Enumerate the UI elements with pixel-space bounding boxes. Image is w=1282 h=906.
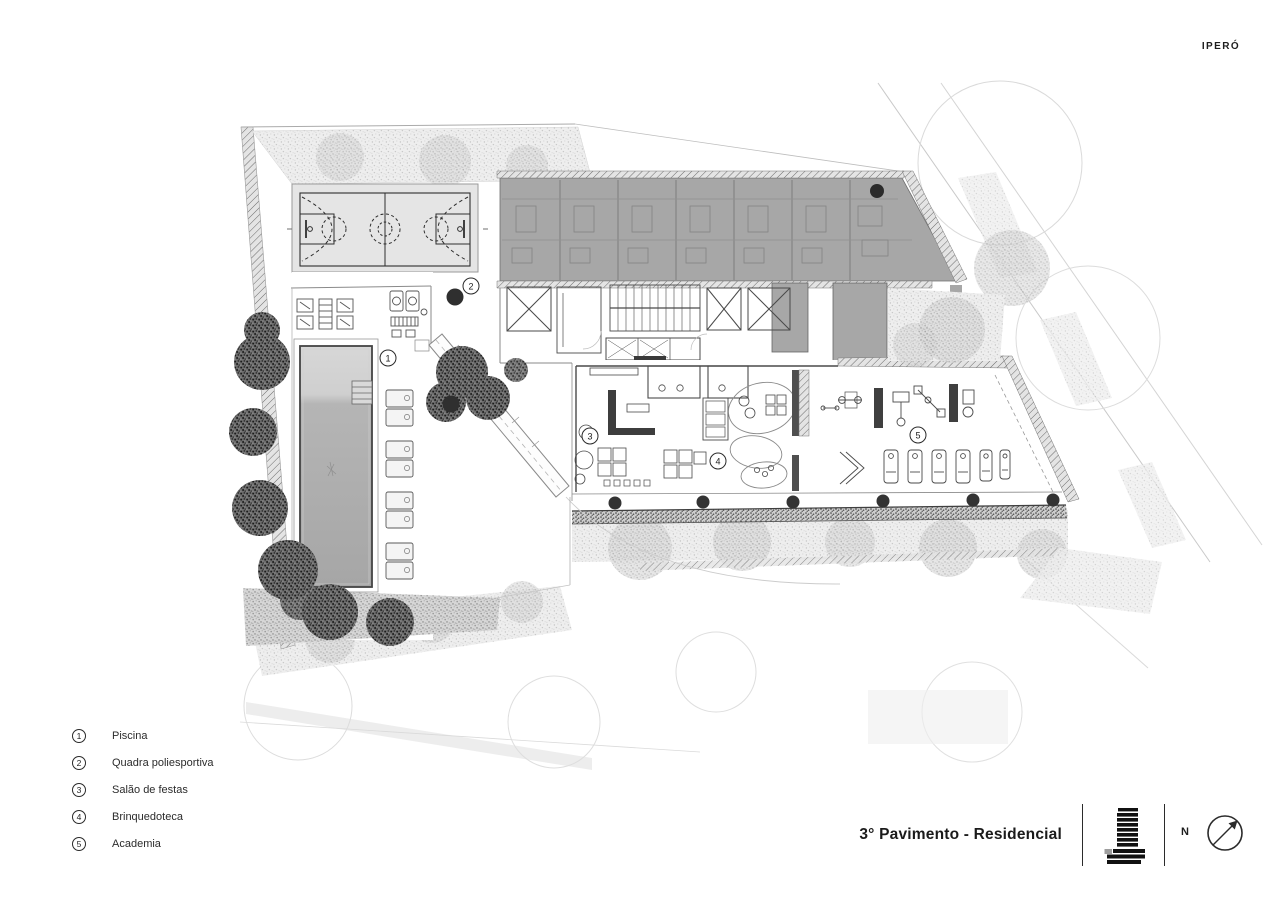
plan-marker-brinquedoteca: 4 bbox=[710, 453, 727, 470]
circulation-core bbox=[500, 285, 790, 363]
basketball-court bbox=[287, 184, 488, 272]
legend-item-salao: 3 Salão de festas bbox=[72, 783, 214, 797]
titleblock-divider-right bbox=[1164, 804, 1165, 866]
legend-item-brinquedoteca: 4 Brinquedoteca bbox=[72, 810, 214, 824]
plan-marker-piscina: 1 bbox=[380, 350, 397, 367]
plan-marker-salao: 3 bbox=[582, 428, 599, 445]
plan-marker-academia: 5 bbox=[910, 427, 927, 444]
legend-item-piscina: 1 Piscina bbox=[72, 729, 214, 743]
legend-number-1: 1 bbox=[72, 729, 86, 743]
garden-east bbox=[888, 288, 1005, 367]
building-elevation-icon bbox=[1104, 806, 1148, 864]
legend-number-2: 2 bbox=[72, 756, 86, 770]
legend-number-5: 5 bbox=[72, 837, 86, 851]
legend-number-4: 4 bbox=[72, 810, 86, 824]
legend-label-5: Academia bbox=[112, 838, 161, 850]
legend: 1 Piscina 2 Quadra poliesportiva 3 Salão… bbox=[72, 729, 214, 864]
legend-label-4: Brinquedoteca bbox=[112, 811, 183, 823]
legend-label-1: Piscina bbox=[112, 730, 147, 742]
legend-number-3: 3 bbox=[72, 783, 86, 797]
sheet-title: 3° Pavimento - Residencial bbox=[840, 826, 1062, 844]
legend-item-quadra: 2 Quadra poliesportiva bbox=[72, 756, 214, 770]
legend-item-academia: 5 Academia bbox=[72, 837, 214, 851]
titleblock-divider-left bbox=[1082, 804, 1083, 866]
north-label: N bbox=[1181, 826, 1189, 838]
legend-label-3: Salão de festas bbox=[112, 784, 188, 796]
plan-marker-quadra: 2 bbox=[463, 278, 480, 295]
legend-label-2: Quadra poliesportiva bbox=[112, 757, 214, 769]
brand-logo: IPERÓ bbox=[1202, 41, 1240, 52]
north-arrow-icon bbox=[1199, 811, 1251, 855]
